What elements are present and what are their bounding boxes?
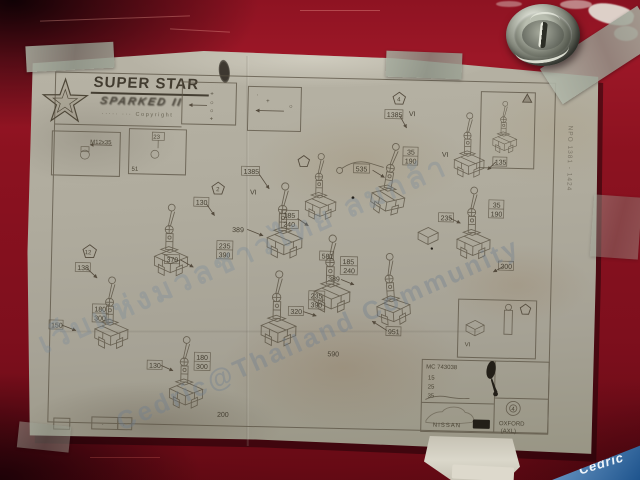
legend-mark: + bbox=[210, 116, 214, 122]
tape-strip bbox=[386, 51, 463, 80]
table-model-variant: (AXL) bbox=[501, 429, 516, 435]
table-row: 25 bbox=[428, 384, 435, 390]
part-number-label: VI bbox=[250, 189, 257, 196]
star-logo-icon bbox=[43, 79, 88, 122]
part-number-label: 235 bbox=[440, 215, 452, 222]
part-number-label: 370 bbox=[166, 257, 178, 264]
part-number-label: 300 bbox=[196, 364, 208, 371]
label-boxes bbox=[48, 102, 517, 377]
part-number-label: 35 bbox=[493, 202, 501, 209]
badge-number: 4 bbox=[397, 97, 401, 103]
part-number-label: VI bbox=[465, 342, 471, 348]
tape-strip bbox=[25, 42, 114, 73]
part-number-label: 235 bbox=[311, 293, 323, 300]
badge-number: 12 bbox=[85, 250, 92, 256]
legend-symbols: + ○ ○ + + ○ · bbox=[210, 91, 294, 124]
part-number-label: 235 bbox=[219, 243, 231, 250]
tape-strip bbox=[590, 194, 640, 259]
part-number-label: 185 bbox=[342, 259, 354, 266]
part-number-label: 135 bbox=[495, 159, 507, 166]
part-number-label: 240 bbox=[283, 222, 295, 229]
part-number-label: 200 bbox=[217, 412, 229, 419]
table-row: 35 bbox=[427, 393, 434, 399]
part-number-label: 130 bbox=[196, 200, 208, 207]
paper-flap bbox=[452, 464, 515, 480]
part-number-label: 951 bbox=[388, 329, 400, 336]
part-number-label: 390 bbox=[310, 302, 322, 309]
table-row: 15 bbox=[428, 375, 435, 381]
badge-number: 2 bbox=[216, 187, 220, 193]
part-number-label: VI bbox=[442, 152, 449, 159]
diagram-frame bbox=[46, 72, 556, 440]
part-number-label: 240 bbox=[343, 268, 355, 275]
part-number-labels: 1385 VI 185 240 389 130 235 390 370 535 … bbox=[49, 89, 516, 425]
part-number-label: 180 bbox=[196, 355, 208, 362]
part-number-label: 535 bbox=[356, 166, 368, 173]
tape-strip bbox=[17, 421, 71, 452]
part-number-label: 190 bbox=[491, 211, 503, 218]
table-brand: NISSAN bbox=[433, 423, 461, 430]
table-model: OXFORD bbox=[499, 421, 525, 428]
legend-mark: · bbox=[256, 93, 258, 99]
dark-ink-blobs bbox=[346, 196, 502, 429]
turnlock-fastener bbox=[506, 4, 580, 66]
photo-of-taped-diagram: SUPER STAR SPARKED II ····· ··· Copyrigh… bbox=[0, 0, 640, 480]
reference-badges bbox=[82, 84, 536, 314]
detail-box-label: 23 bbox=[153, 135, 160, 141]
bolt-spec-label: M12x35 bbox=[90, 140, 112, 146]
part-number-label: 130 bbox=[149, 363, 161, 370]
part-number-label: 300 bbox=[94, 315, 106, 322]
part-number-label: 138 bbox=[77, 265, 89, 272]
margin-print-code: NPO 1381 - 1424 bbox=[565, 126, 573, 192]
part-number-label: 35 bbox=[407, 149, 415, 156]
legend-mark: + bbox=[210, 91, 214, 97]
table-code: MC 743038 bbox=[426, 364, 458, 371]
part-number-label: 300 bbox=[500, 264, 512, 271]
part-number-label: VI bbox=[409, 111, 416, 118]
part-number-label: 581 bbox=[322, 254, 334, 261]
legend-mark: ○ bbox=[210, 108, 214, 114]
part-number-label: 320 bbox=[290, 309, 302, 316]
part-number-label: 390 bbox=[219, 252, 231, 259]
part-number-label: 150 bbox=[51, 322, 63, 329]
legend-mark: ○ bbox=[289, 104, 293, 110]
part-number-label: 180 bbox=[94, 306, 106, 313]
part-number-label: 1385 bbox=[387, 112, 403, 119]
part-number-label: 190 bbox=[405, 158, 417, 165]
bottom-cell-mark: · bbox=[102, 422, 104, 428]
legend-mark: + bbox=[266, 99, 270, 105]
part-number-label: 185 bbox=[283, 213, 295, 220]
bottom-cell-mark: · bbox=[123, 423, 125, 429]
part-number-label: 1385 bbox=[243, 169, 259, 176]
detail-box-label: 51 bbox=[131, 167, 138, 173]
part-number-label: 389 bbox=[232, 227, 244, 234]
legend-mark: ○ bbox=[210, 100, 214, 106]
part-number-label: 590 bbox=[327, 351, 339, 358]
part-number-label: 389 bbox=[328, 276, 340, 283]
